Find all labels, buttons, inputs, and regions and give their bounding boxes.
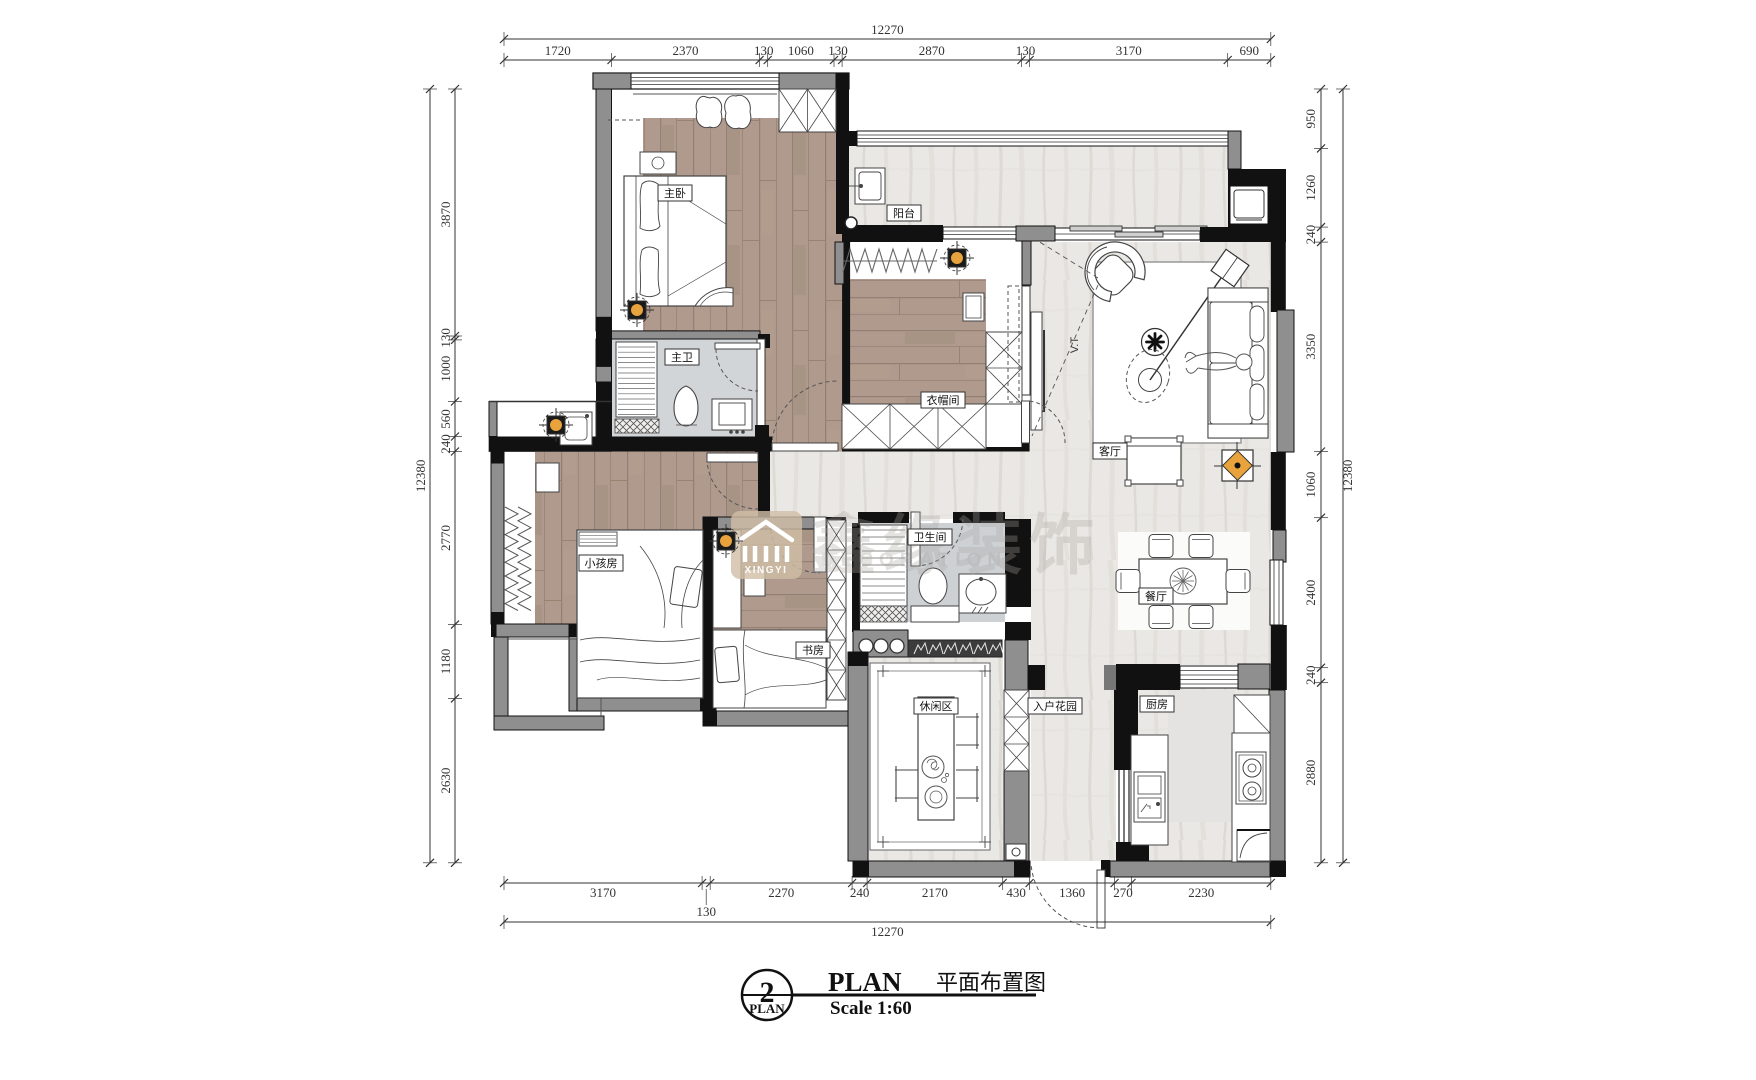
svg-text:1060: 1060 [1303,472,1318,498]
svg-text:240: 240 [850,885,870,900]
svg-text:3870: 3870 [438,201,453,227]
svg-text:1260: 1260 [1303,175,1318,201]
svg-text:Scale 1:60: Scale 1:60 [830,998,912,1019]
svg-text:1000: 1000 [438,356,453,382]
svg-text:2230: 2230 [1188,885,1214,900]
svg-text:主卫: 主卫 [671,351,693,364]
svg-text:餐厅: 餐厅 [1145,589,1167,603]
svg-text:12270: 12270 [871,22,904,37]
svg-text:2630: 2630 [438,768,453,794]
svg-text:小孩房: 小孩房 [585,557,618,570]
svg-text:2400: 2400 [1303,580,1318,606]
svg-text:1720: 1720 [545,43,571,58]
svg-text:V.T: V.T [1069,337,1081,353]
svg-text:690: 690 [1239,43,1259,58]
svg-text:3350: 3350 [1303,334,1318,360]
svg-text:书房: 书房 [802,644,824,657]
svg-text:130: 130 [1016,43,1036,58]
svg-text:XINGYI: XINGYI [745,565,788,576]
svg-text:厨房: 厨房 [1146,698,1168,711]
svg-text:1180: 1180 [438,649,453,675]
svg-text:12380: 12380 [1340,460,1355,493]
svg-text:2870: 2870 [919,43,945,58]
svg-text:衣帽间: 衣帽间 [927,393,960,407]
svg-text:240: 240 [438,434,453,454]
svg-text:130: 130 [696,904,716,919]
svg-text:430: 430 [1006,885,1026,900]
svg-text:2370: 2370 [673,43,699,58]
svg-text:阳台: 阳台 [893,206,915,220]
svg-text:12380: 12380 [413,460,428,493]
svg-text:3170: 3170 [1116,43,1142,58]
svg-text:PLAN: PLAN [749,1001,785,1016]
svg-text:130: 130 [828,43,848,58]
svg-text:12270: 12270 [871,924,904,939]
svg-text:2170: 2170 [922,885,948,900]
svg-text:130: 130 [754,43,774,58]
svg-text:主卧: 主卧 [664,187,686,200]
svg-text:240: 240 [1303,665,1318,685]
svg-text:2880: 2880 [1303,760,1318,786]
svg-text:2770: 2770 [438,525,453,551]
svg-text:2270: 2270 [768,885,794,900]
svg-text:270: 270 [1113,885,1133,900]
svg-text:560: 560 [438,409,453,429]
svg-text:1060: 1060 [788,43,814,58]
svg-text:入户花园: 入户花园 [1033,699,1077,713]
svg-text:950: 950 [1303,109,1318,129]
svg-text:客厅: 客厅 [1099,444,1121,458]
svg-text:240: 240 [1303,225,1318,245]
svg-text:休闲区: 休闲区 [920,699,953,713]
svg-text:DECORATION: DECORATION [821,550,1007,571]
svg-text:130: 130 [438,328,453,348]
svg-text:饰: 饰 [1029,508,1095,582]
svg-text:1360: 1360 [1059,885,1085,900]
svg-text:PLAN: PLAN [828,967,902,997]
svg-text:3170: 3170 [590,885,616,900]
svg-text:卫生间: 卫生间 [914,530,947,544]
svg-text:平面布置图: 平面布置图 [936,970,1046,995]
